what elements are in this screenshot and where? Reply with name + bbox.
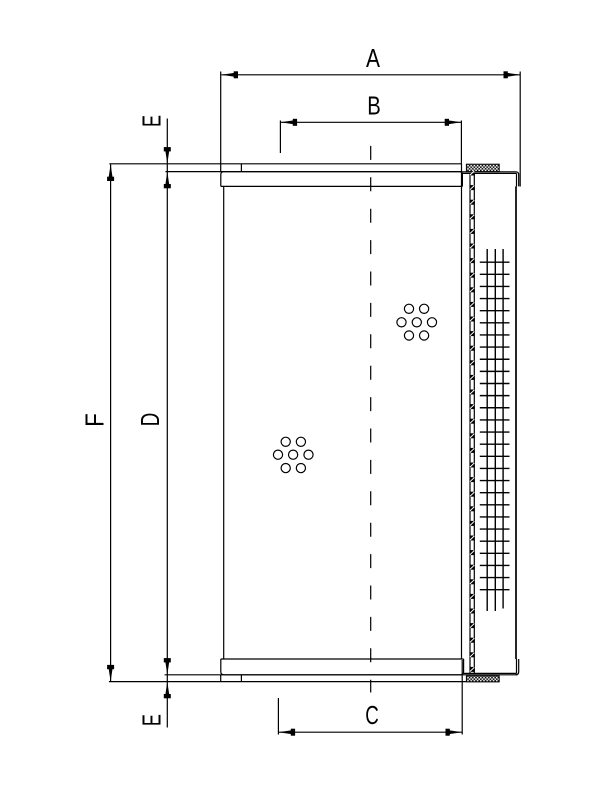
svg-text:B: B — [367, 91, 381, 121]
svg-text:F: F — [79, 413, 109, 427]
svg-text:C: C — [365, 700, 379, 730]
svg-text:D: D — [135, 413, 165, 427]
svg-text:E: E — [136, 115, 166, 127]
svg-text:A: A — [366, 43, 381, 73]
svg-text:E: E — [136, 714, 166, 726]
